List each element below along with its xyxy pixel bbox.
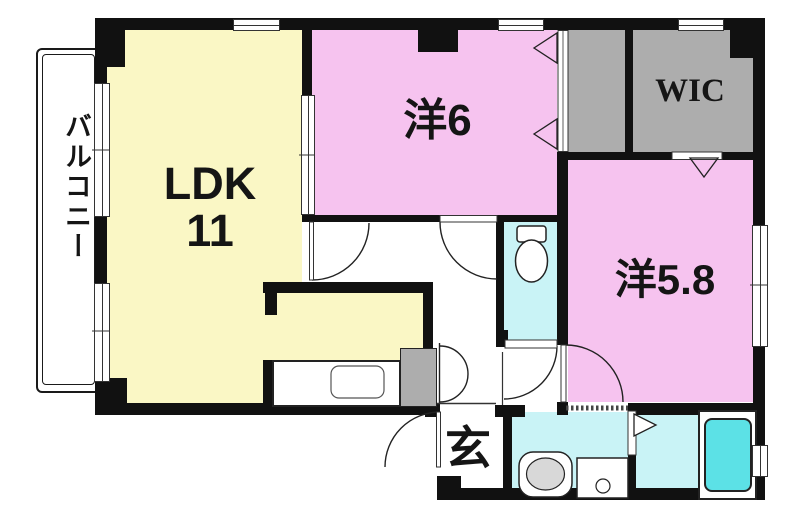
floor-plan: バルコニー LDK11 洋6 WIC 洋5.8 玄 [0, 0, 800, 529]
door-opening [505, 340, 557, 348]
wall [496, 222, 504, 347]
window [498, 19, 544, 31]
door-opening [672, 152, 722, 160]
wall [437, 476, 461, 500]
wall [423, 293, 433, 350]
sliding-partition [301, 95, 315, 215]
wall [95, 18, 765, 30]
room-toilet [504, 222, 557, 340]
wall [302, 215, 440, 222]
wall-pillar [418, 30, 458, 52]
wall [265, 293, 277, 315]
ldk-label-text: LDK [164, 158, 256, 209]
bath-door-strip [628, 411, 636, 455]
wall-notch [730, 30, 753, 58]
wall [95, 18, 107, 83]
wall [503, 412, 512, 500]
window [752, 445, 768, 477]
room-closet [568, 30, 625, 152]
ldk-label: LDK11 [140, 160, 280, 255]
wall [263, 282, 433, 293]
kitchen-counter [272, 360, 401, 407]
wall [496, 330, 508, 347]
window [94, 283, 110, 382]
window [678, 19, 724, 31]
wall [95, 215, 107, 283]
door-arc-entrance [385, 412, 440, 467]
door-opening [440, 216, 497, 223]
shoe-cabinet [400, 348, 437, 407]
window [94, 83, 110, 217]
closet-door-strip [558, 31, 568, 152]
door-arc-hall-closet [440, 346, 468, 402]
door-arc-toilet [504, 346, 557, 399]
wall [557, 402, 568, 415]
wic-label: WIC [630, 74, 750, 109]
wall [557, 152, 672, 160]
window [233, 19, 280, 31]
entrance-label: 玄 [437, 424, 499, 472]
door-leaf [561, 345, 566, 402]
bedroom58-label: 洋5.8 [575, 258, 755, 302]
door-arc-ldk [312, 223, 369, 280]
room-washroom [512, 412, 628, 498]
door-leaf [310, 222, 314, 280]
door-arc-bedroom6 [440, 222, 497, 279]
balcony-label: バルコニー [38, 112, 90, 392]
wall [557, 152, 568, 345]
bedroom6-label: 洋6 [355, 98, 520, 144]
bathtub-icon [704, 418, 752, 492]
ldk-size-text: 11 [186, 205, 234, 256]
